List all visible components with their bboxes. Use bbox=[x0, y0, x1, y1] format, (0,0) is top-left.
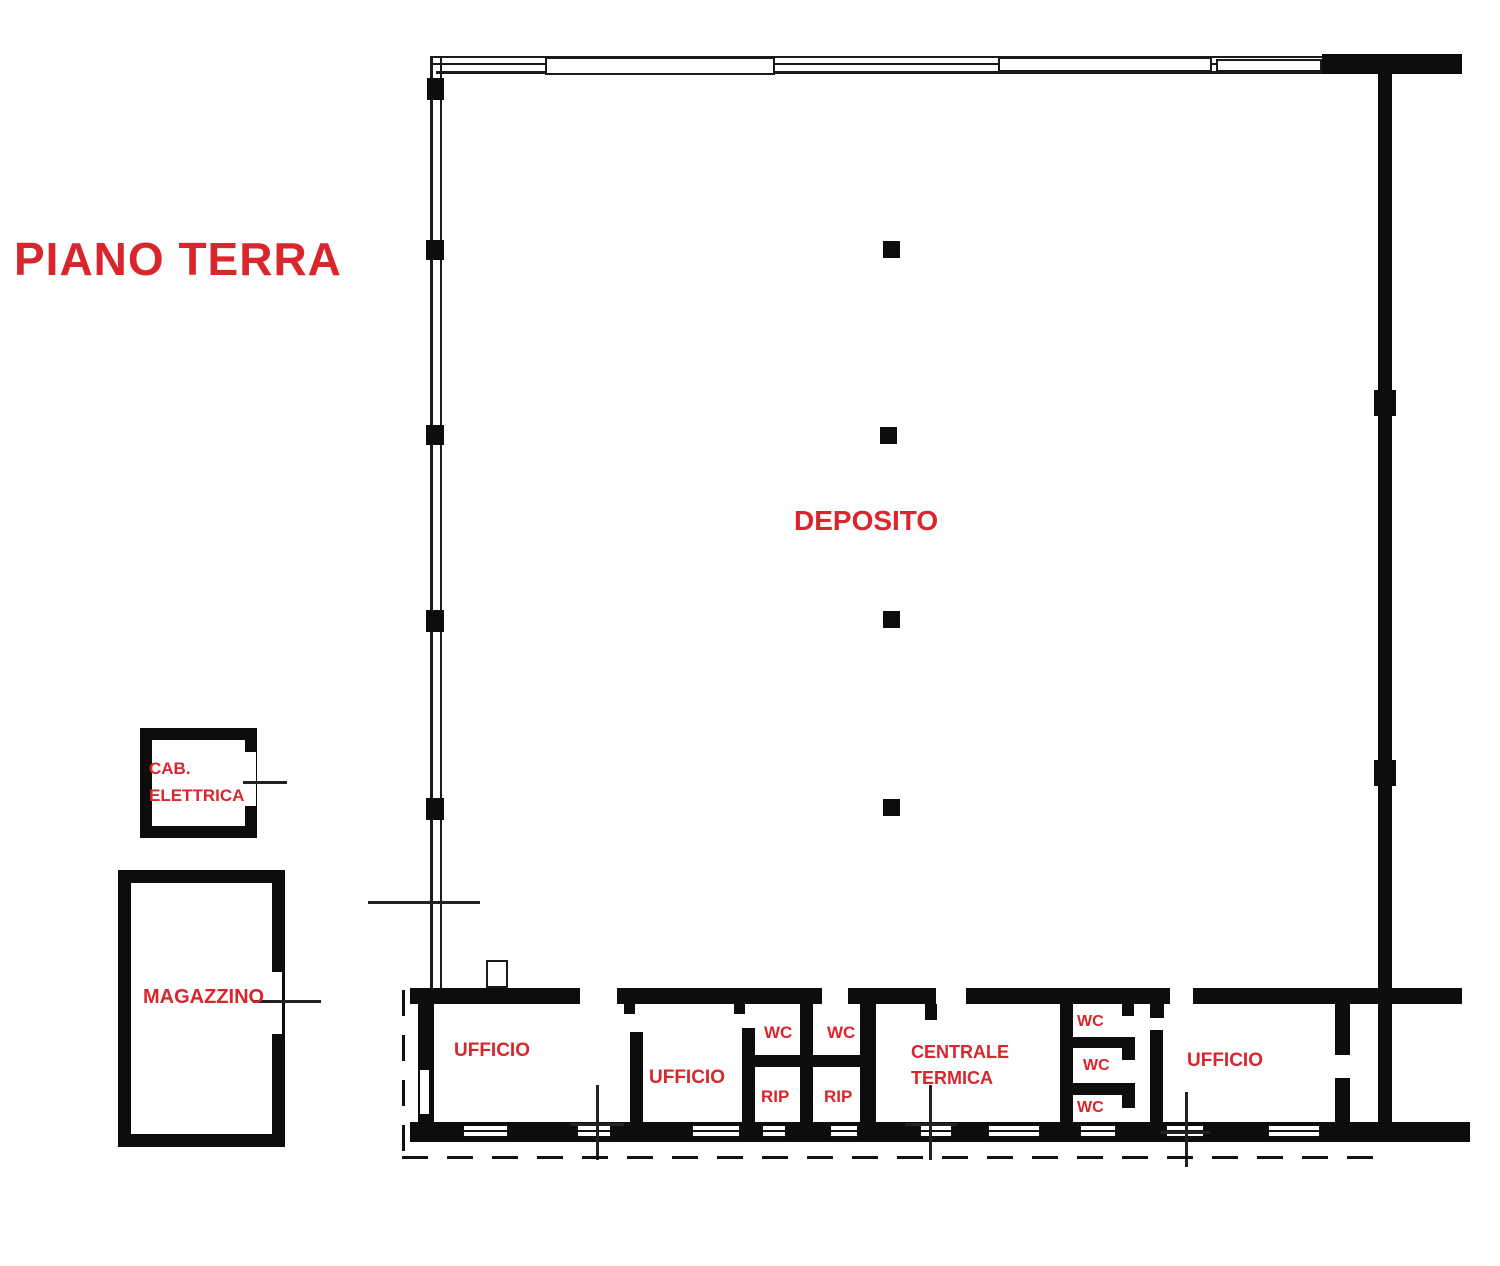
door-jamb bbox=[624, 1004, 635, 1014]
pillar bbox=[880, 427, 897, 444]
rip-left-label: RIP bbox=[761, 1088, 789, 1107]
pillar bbox=[883, 799, 900, 816]
sliding-door-panel bbox=[545, 57, 775, 75]
rip-right-label: RIP bbox=[824, 1088, 852, 1107]
window-opening bbox=[1268, 1125, 1320, 1137]
centrale-termica-label-line2: TERMICA bbox=[911, 1065, 1009, 1091]
ufficio-center-label: UFFICIO bbox=[649, 1068, 725, 1089]
door-axis-mark bbox=[905, 1123, 957, 1126]
ufficio-left-label: UFFICIO bbox=[454, 1041, 530, 1062]
pillar bbox=[427, 78, 444, 100]
partition-wall bbox=[1122, 1083, 1135, 1108]
partition-wall bbox=[742, 1055, 876, 1067]
partition-wall bbox=[1150, 1030, 1163, 1122]
deposito-left-wall bbox=[440, 58, 442, 988]
sliding-door-panel bbox=[998, 57, 1212, 72]
partition-wall bbox=[742, 1028, 755, 1122]
window-opening bbox=[988, 1125, 1040, 1137]
door-opening bbox=[245, 752, 256, 806]
floor-plan: PIANO TERRA DEPOSITO CAB. ELETTRICA MAGA… bbox=[0, 0, 1500, 1266]
partition-wall bbox=[1122, 1037, 1135, 1060]
deposito-label: DEPOSITO bbox=[794, 506, 938, 537]
sliding-door-panel bbox=[1216, 59, 1322, 72]
wc-top-left-label: WC bbox=[764, 1024, 792, 1043]
door-axis-mark bbox=[570, 1123, 624, 1126]
window-opening bbox=[420, 1070, 429, 1114]
door-jamb bbox=[1122, 1004, 1134, 1016]
pillar bbox=[426, 425, 444, 445]
pillar bbox=[1374, 390, 1396, 416]
partition-wall bbox=[1335, 1004, 1350, 1055]
deposito-left-wall bbox=[430, 58, 433, 988]
pillar bbox=[1374, 760, 1396, 786]
cab-elettrica-label-line2: ELETTRICA bbox=[149, 782, 244, 809]
partition-wall bbox=[1060, 1083, 1122, 1095]
centrale-termica-label: CENTRALE TERMICA bbox=[911, 1039, 1009, 1091]
window-opening bbox=[830, 1125, 858, 1137]
plan-title: PIANO TERRA bbox=[14, 234, 342, 285]
window-opening bbox=[577, 1125, 611, 1137]
door-jamb bbox=[734, 1004, 745, 1014]
wc-stack-middle-label: WC bbox=[1083, 1057, 1110, 1075]
pillar bbox=[883, 611, 900, 628]
door-opening bbox=[270, 972, 282, 1034]
door-axis-mark bbox=[243, 781, 287, 784]
door-axis-mark bbox=[1160, 1131, 1210, 1134]
band-top-wall bbox=[617, 988, 822, 1004]
boundary-dashed-line bbox=[402, 990, 405, 1158]
partition-wall bbox=[1335, 1078, 1350, 1122]
deposito-right-wall bbox=[1378, 64, 1392, 1140]
band-left-wall bbox=[418, 988, 434, 1142]
window-opening bbox=[762, 1125, 786, 1137]
door-jamb bbox=[1150, 1004, 1164, 1018]
partition-wall bbox=[1060, 1037, 1122, 1048]
pillar bbox=[883, 241, 900, 258]
pillar bbox=[426, 610, 444, 632]
window-opening bbox=[463, 1125, 508, 1137]
magazzino-label: MAGAZZINO bbox=[143, 986, 264, 1008]
pillar bbox=[426, 798, 444, 820]
boundary-dashed-line bbox=[402, 1156, 1390, 1159]
door-jamb-detail bbox=[486, 960, 508, 988]
window-opening bbox=[1080, 1125, 1116, 1137]
ufficio-right-label: UFFICIO bbox=[1187, 1051, 1263, 1072]
window-opening bbox=[920, 1125, 952, 1137]
wc-stack-bottom-label: WC bbox=[1077, 1099, 1104, 1117]
pillar bbox=[426, 240, 444, 260]
centrale-termica-label-line1: CENTRALE bbox=[911, 1039, 1009, 1065]
cab-elettrica-label: CAB. ELETTRICA bbox=[149, 755, 244, 809]
wc-top-right-label: WC bbox=[827, 1024, 855, 1043]
magazzino-building bbox=[118, 870, 285, 1147]
section-line bbox=[368, 901, 480, 904]
wc-stack-top-label: WC bbox=[1077, 1013, 1104, 1031]
cab-elettrica-label-line1: CAB. bbox=[149, 755, 244, 782]
door-jamb bbox=[925, 1004, 937, 1020]
window-opening bbox=[692, 1125, 740, 1137]
band-top-wall bbox=[848, 988, 936, 1004]
band-top-wall bbox=[1193, 988, 1462, 1004]
band-top-wall bbox=[966, 988, 1170, 1004]
deposito-top-wall-thick bbox=[1322, 54, 1462, 74]
partition-wall bbox=[1060, 1004, 1073, 1122]
partition-wall bbox=[630, 1032, 643, 1122]
band-top-wall bbox=[410, 988, 580, 1004]
